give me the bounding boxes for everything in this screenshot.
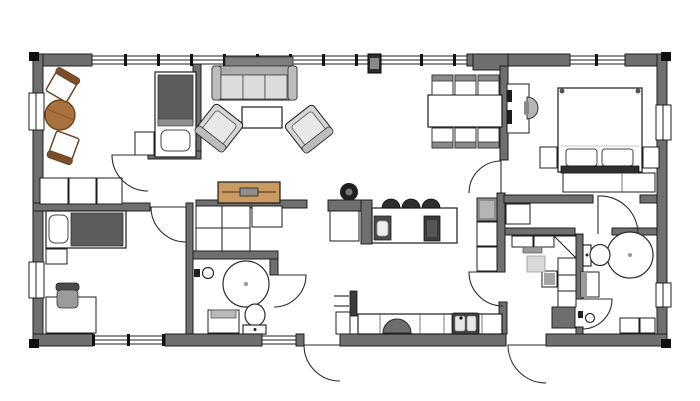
window-mullion xyxy=(92,334,95,346)
hall-wardrobe xyxy=(69,178,96,204)
dining-chair-back xyxy=(478,142,499,148)
desk-item xyxy=(507,90,512,102)
dining-chair-back xyxy=(455,142,476,148)
hall-wardrobe xyxy=(40,178,68,204)
wall-right-a xyxy=(657,54,667,105)
office-chair-seat xyxy=(524,101,529,115)
wall-bath1-west xyxy=(186,203,193,334)
window-mullion xyxy=(322,54,325,66)
hall-cabinet-door xyxy=(480,201,494,218)
bed-post xyxy=(636,89,641,94)
kitchen-sink-bowl xyxy=(467,316,476,331)
drawer-unit-front xyxy=(544,273,555,285)
toilet-bowl xyxy=(245,304,265,326)
closet-cell xyxy=(196,228,222,251)
wall-bottom-e xyxy=(546,334,667,346)
sofa-cushion xyxy=(265,75,287,99)
laundry-cabinet xyxy=(558,258,576,275)
laundry-cabinet xyxy=(558,275,576,291)
wall-sink xyxy=(203,268,214,279)
bath-vanity-drawer xyxy=(211,310,236,318)
floor-plan-page xyxy=(0,0,700,401)
dining-chair-back xyxy=(432,75,453,81)
single-bed2-blanket xyxy=(71,213,123,246)
closet-cell xyxy=(222,206,250,228)
sofa-cushion xyxy=(243,75,265,99)
shower-drain xyxy=(244,282,248,286)
corner-cap-tl xyxy=(29,52,39,61)
window-mullion xyxy=(124,54,127,66)
wall-bottom-a xyxy=(33,334,93,346)
sink-tap xyxy=(194,269,200,277)
wall-bath2-west-b xyxy=(576,327,583,334)
door-arc-bedroom-left xyxy=(151,207,186,242)
upper-cabinet xyxy=(512,236,533,247)
island-counter-l-side xyxy=(361,200,372,244)
closet-cell xyxy=(222,228,250,251)
laundry-cabinet xyxy=(558,291,576,307)
window-mullion xyxy=(162,334,165,346)
corner-cap-bl xyxy=(29,339,39,348)
nightstand xyxy=(135,132,154,155)
wall-bottom-b xyxy=(165,334,262,346)
sofa-arm xyxy=(288,66,297,100)
door-arc-entry-side xyxy=(508,345,546,383)
desk-item xyxy=(507,110,512,124)
bed-pillow xyxy=(566,149,597,166)
bar-stool xyxy=(422,199,440,208)
bed-post xyxy=(560,89,565,94)
island-cooktop-inner xyxy=(427,220,437,237)
door-arc-bath2 xyxy=(582,299,612,329)
island-side-table xyxy=(330,211,359,241)
bed-footboard xyxy=(561,166,639,173)
tall-cabinet xyxy=(350,291,357,316)
closet-cell xyxy=(196,206,222,228)
dining-table xyxy=(428,95,502,127)
floor-plan xyxy=(0,0,700,401)
island-sink-bowl xyxy=(377,221,388,236)
shower-drain xyxy=(628,253,632,257)
window-mullion xyxy=(157,54,160,66)
desk-chair-seat xyxy=(57,290,78,308)
washing-machine xyxy=(552,307,575,328)
toilet-bowl xyxy=(590,245,610,266)
coffee-table xyxy=(242,107,282,128)
wall-bedroom2-south-b xyxy=(640,195,657,203)
wall-bottom-d xyxy=(340,334,506,346)
door-arc-bath1 xyxy=(274,275,306,307)
wall-flue-inner xyxy=(370,58,379,69)
wall-sink xyxy=(586,314,595,323)
nightstand xyxy=(643,147,659,168)
single-bed-pillow xyxy=(161,130,190,151)
mudroom-cabinet xyxy=(506,204,530,224)
single-bed2-pillow xyxy=(49,215,68,243)
round-dining-table xyxy=(45,100,75,130)
wall-hall2-west xyxy=(497,193,505,272)
door-arc-corridor xyxy=(469,161,501,193)
window-mullion xyxy=(595,54,598,66)
dining-chair-back xyxy=(455,75,476,81)
wall-bath1-north xyxy=(193,251,278,259)
kitchen-sink-tap xyxy=(459,316,462,319)
hall-cabinet xyxy=(477,247,497,271)
door-arc-entry-main xyxy=(304,345,340,381)
window-mullion xyxy=(355,54,358,66)
bar-stool xyxy=(402,199,420,208)
dining-chair-back xyxy=(478,75,499,81)
closet-cell xyxy=(252,206,282,227)
base-cabinet xyxy=(336,312,350,334)
bath2-lowboard xyxy=(620,318,639,333)
wall-bath1-east xyxy=(270,259,278,275)
sofa-cushion xyxy=(221,75,243,99)
bedside-bench xyxy=(46,249,67,264)
window-mullion xyxy=(190,54,193,66)
sofa-arm xyxy=(212,66,221,100)
toilet-button xyxy=(586,254,589,257)
upper-cabinet xyxy=(534,236,554,247)
bedroom-dresser xyxy=(563,173,655,192)
dining-chair-back xyxy=(432,142,453,148)
bed-pillow xyxy=(602,149,633,166)
nightstand xyxy=(540,147,557,168)
bar-stool xyxy=(382,199,400,208)
corner-cap-br xyxy=(661,339,671,348)
sofa-back xyxy=(212,66,297,75)
single-bed-blanket xyxy=(158,75,193,125)
wall-bath2-north-a xyxy=(505,228,575,235)
corner-cap-tr xyxy=(661,52,671,61)
bath2-cabinet-side xyxy=(581,272,587,297)
toilet-button xyxy=(254,328,257,331)
door-arc-kitchen xyxy=(469,272,503,306)
single-bed-sheet xyxy=(158,119,193,126)
sideboard-item xyxy=(240,188,258,196)
window-mullion xyxy=(127,334,130,346)
window-mullion xyxy=(420,54,423,66)
cabinet-item xyxy=(523,247,542,253)
floor-mat xyxy=(527,256,545,272)
hall-cabinet xyxy=(477,222,497,246)
wall-bottom-c xyxy=(296,334,304,346)
hall-wardrobe xyxy=(97,178,122,204)
plant-pot-inner xyxy=(346,189,353,196)
bath2-lowboard xyxy=(640,318,655,333)
corner-cabinet xyxy=(554,236,576,258)
window-mullion xyxy=(453,54,456,66)
sink-tap xyxy=(578,311,583,318)
wall-bedroom2-south-a xyxy=(504,195,593,203)
